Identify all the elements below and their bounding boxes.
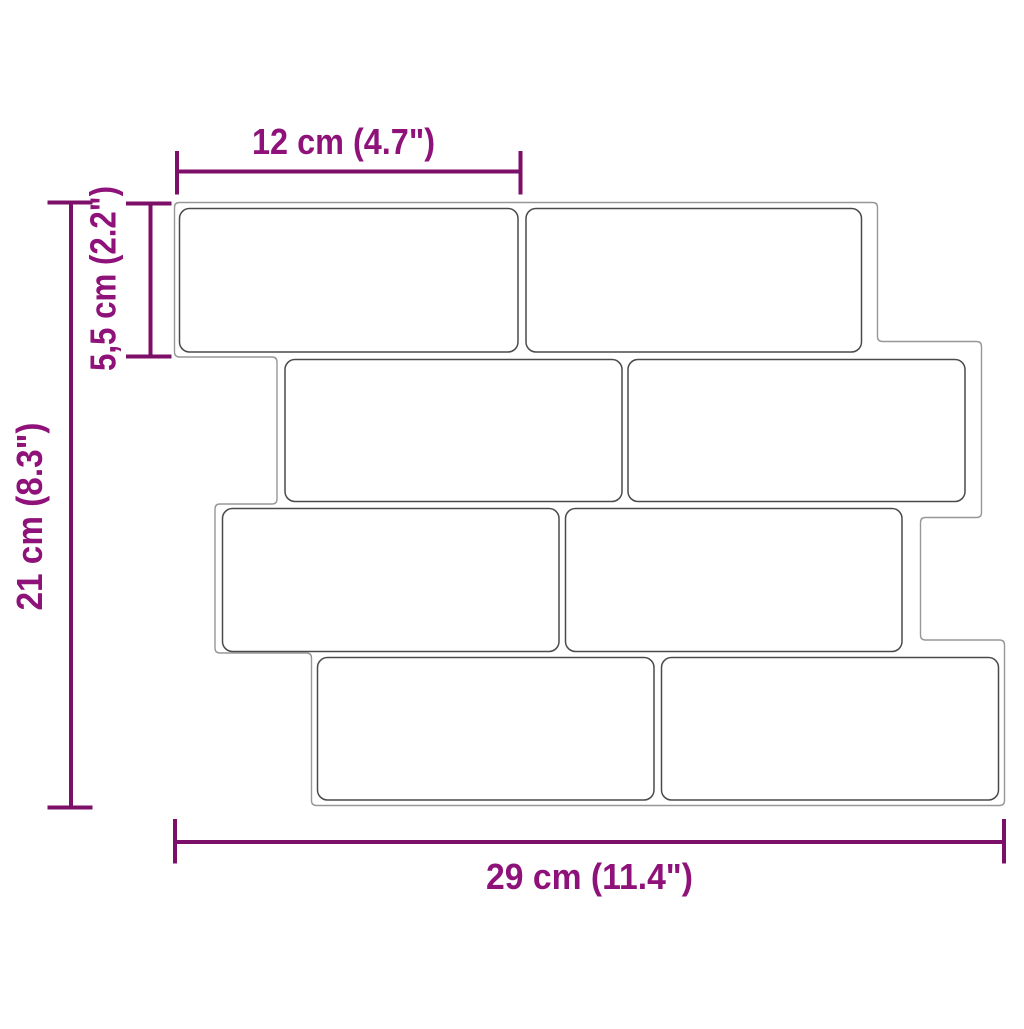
svg-text:29 cm (11.4"): 29 cm (11.4") (486, 856, 693, 897)
svg-text:12 cm (4.7"): 12 cm (4.7") (252, 121, 435, 162)
svg-text:21 cm (8.3"): 21 cm (8.3") (9, 423, 50, 611)
svg-text:5,5 cm (2.2"): 5,5 cm (2.2") (83, 186, 124, 371)
